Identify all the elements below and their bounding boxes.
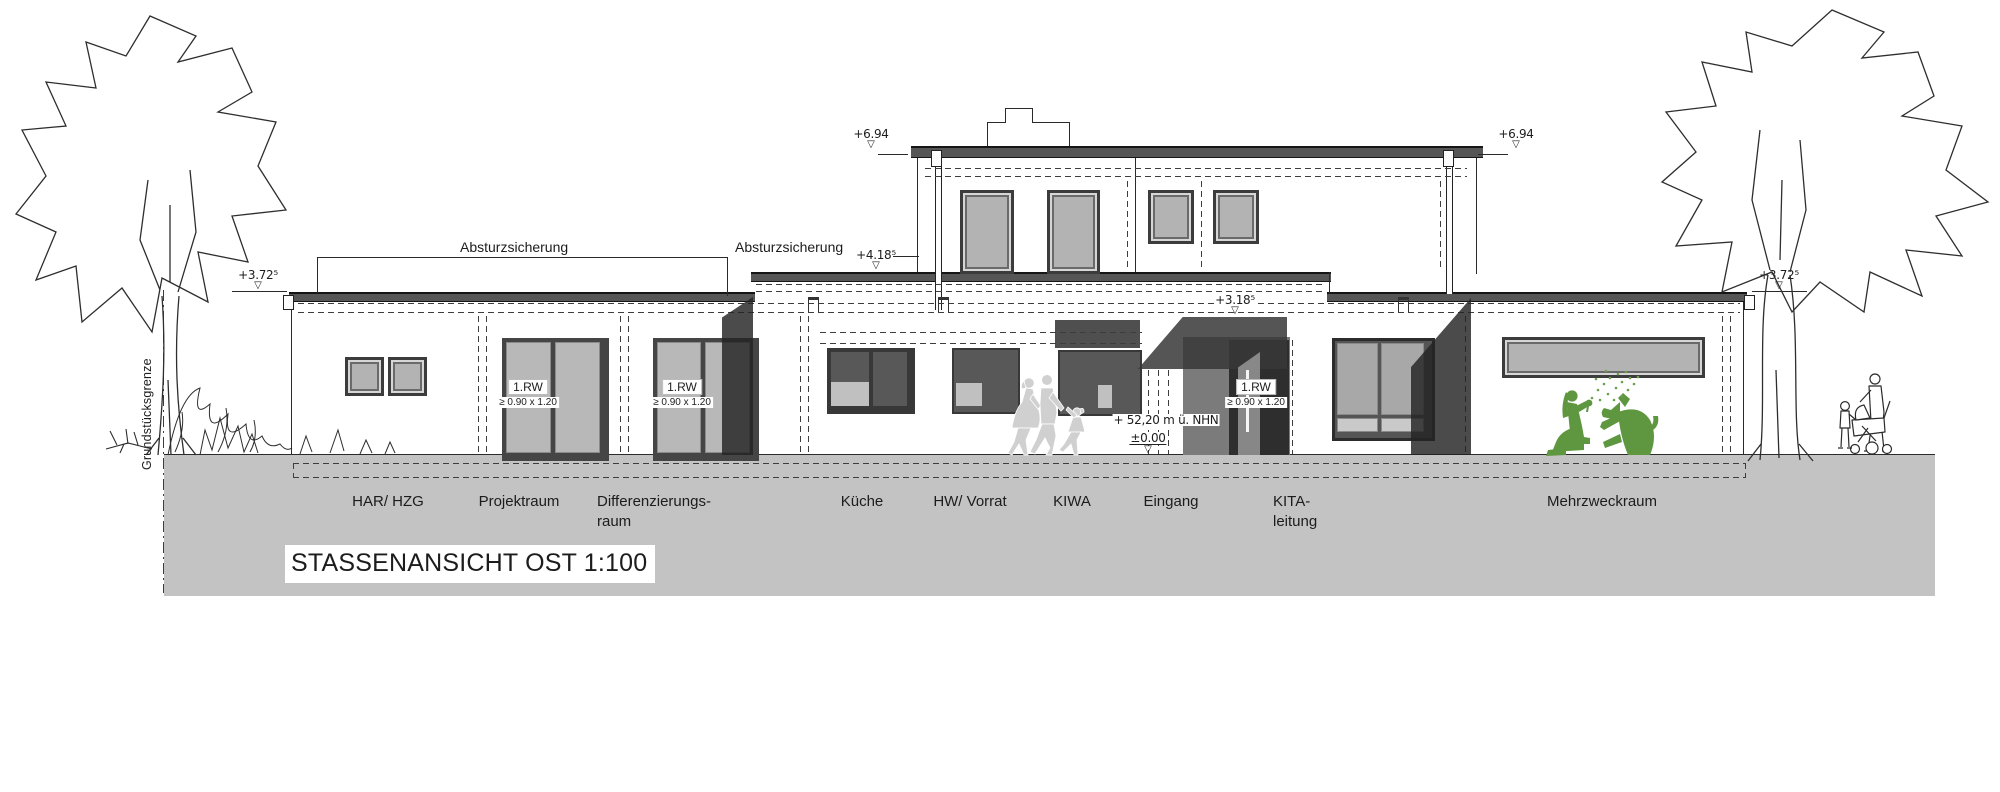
window-pane	[1337, 343, 1378, 415]
leader-line	[893, 256, 919, 257]
level-triangle-icon: ▽	[237, 281, 279, 290]
roof-railing	[317, 257, 727, 258]
dashed-line	[1168, 370, 1169, 454]
level-triangle-icon: ▽	[1129, 445, 1166, 454]
dashed-line	[756, 291, 1326, 292]
dashed-line	[298, 312, 1740, 313]
leader-line	[1478, 154, 1508, 155]
foundation-dashed-line	[293, 477, 1745, 478]
property-line-label: Grundstücksgrenze	[140, 352, 154, 470]
level-triangle-icon: ▽	[852, 140, 889, 149]
room-label-projektraum: Projektraum	[479, 492, 560, 512]
dashed-line	[925, 168, 1467, 169]
room-label-mehrzweckraum: Mehrzweckraum	[1547, 492, 1657, 512]
elevation-marker-canopy: +3.18⁵ ▽	[1214, 294, 1256, 315]
foundation-dashed-line	[1745, 463, 1746, 478]
chimney	[987, 122, 1070, 148]
rescue-window-tag: 1.RW ≥ 0.90 x 1.20	[497, 378, 559, 408]
right-wing-roof	[1327, 292, 1747, 302]
window-glass-light	[1098, 385, 1112, 408]
level-triangle-icon: ▽	[1497, 140, 1534, 149]
rescue-window-size: ≥ 0.90 x 1.20	[1225, 397, 1287, 408]
elevation-marker-roof-left: +3.72⁵ ▽	[237, 269, 279, 290]
room-label-kueche: Küche	[841, 492, 884, 512]
rescue-window-label: 1.RW	[508, 379, 548, 395]
dashed-line	[1201, 181, 1202, 271]
dashed-line	[925, 176, 1467, 177]
axis-line	[800, 316, 801, 454]
gutter-bracket	[283, 295, 294, 310]
gutter-bracket	[1744, 295, 1755, 310]
drawing-title: STASSENANSICHT OST 1:100	[285, 545, 655, 583]
facade-shadow-band	[722, 297, 753, 455]
foundation-dashed-line	[293, 463, 1745, 464]
elevation-marker-roof-upper-left: +6.94 ▽	[852, 128, 889, 149]
level-triangle-icon: ▽	[1758, 281, 1800, 290]
rescue-window-size: ≥ 0.90 x 1.20	[651, 397, 713, 408]
dashed-line	[1127, 181, 1128, 271]
dashed-line	[1440, 181, 1441, 271]
roof-railing-post	[317, 257, 318, 293]
upper-small-window-left	[1148, 190, 1194, 244]
window-pane	[555, 342, 600, 453]
axis-line	[1722, 316, 1723, 454]
roof-step-line	[1329, 272, 1330, 294]
stroller-group	[1838, 374, 1892, 454]
property-line	[163, 290, 164, 593]
dashed-line	[820, 332, 1142, 333]
level-triangle-icon: ▽	[1214, 306, 1256, 315]
room-label-kiwa: KIWA	[1053, 492, 1091, 512]
leader-line	[1752, 291, 1807, 292]
dashed-line	[298, 303, 1740, 304]
room-label-hw-vorrat: HW/ Vorrat	[933, 492, 1006, 512]
leader-line	[232, 291, 287, 292]
roof-vent	[938, 297, 949, 312]
upper-window-right	[1047, 190, 1100, 274]
level-triangle-icon: ▽	[855, 261, 897, 270]
window-glass-dark	[831, 352, 869, 382]
upper-small-window-right	[1213, 190, 1259, 244]
roof-vent	[808, 297, 819, 312]
dashed-line	[756, 284, 1326, 285]
foundation-dashed-line	[293, 463, 294, 478]
kueche-window	[827, 348, 915, 414]
fall-protection-label-2: Absturzsicherung	[733, 239, 845, 255]
elevation-marker-roof-right: +3.72⁵ ▽	[1758, 269, 1800, 290]
elevation-marker-roof-upper-right: +6.94 ▽	[1497, 128, 1534, 149]
har-hzg-window-2	[388, 357, 427, 396]
upper-storey-roof	[911, 146, 1483, 158]
left-wing-roof	[289, 292, 755, 302]
room-label-differenzierungsraum: Differenzierungs- raum	[597, 492, 711, 532]
rescue-window-tag: 1.RW ≥ 0.90 x 1.20	[651, 378, 713, 408]
rescue-window-label: 1.RW	[1236, 379, 1276, 395]
gutter-bracket	[1443, 150, 1454, 167]
rescue-window-tag: 1.RW ≥ 0.90 x 1.20	[1225, 378, 1287, 408]
dashed-line	[1292, 340, 1293, 454]
upper-window-left	[960, 190, 1014, 274]
room-label-eingang: Eingang	[1143, 492, 1198, 512]
hw-vorrat-window	[952, 348, 1020, 414]
axis-line	[620, 316, 621, 454]
downpipe	[935, 158, 942, 310]
axis-line	[1730, 316, 1731, 454]
downpipe	[1446, 158, 1453, 294]
chimney-cap	[1005, 108, 1033, 123]
rescue-window-label: 1.RW	[662, 379, 702, 395]
sea-level-label: + 52,20 m ü. NHN	[1113, 414, 1220, 426]
axis-line	[478, 316, 479, 454]
kiwa-window	[1058, 350, 1142, 416]
axis-line	[628, 316, 629, 454]
leader-line	[878, 154, 908, 155]
rescue-window-size: ≥ 0.90 x 1.20	[497, 397, 559, 408]
window-glass-light	[956, 383, 982, 406]
room-label-kita-leitung: KITA- leitung	[1273, 492, 1317, 532]
elevation-marker-ground-zero: ±0.00 ▽	[1129, 432, 1166, 454]
axis-line	[808, 316, 809, 454]
roof-vent	[1398, 297, 1409, 312]
window-glass-dark	[873, 352, 907, 406]
axis-line	[486, 316, 487, 454]
har-hzg-window-1	[345, 357, 384, 396]
elevation-marker-roof-mid: +4.18⁵ ▽	[855, 249, 897, 270]
mehrzweckraum-window	[1502, 337, 1705, 378]
elevation-drawing: Grundstücksgrenze	[0, 0, 2000, 792]
fall-protection-label-1: Absturzsicherung	[458, 239, 570, 255]
roof-railing-post	[727, 257, 728, 296]
window-glass-light	[831, 382, 869, 406]
dashed-line	[820, 343, 1142, 344]
middle-roof	[751, 272, 1331, 282]
window-bottom-panel	[1337, 418, 1378, 432]
gutter-bracket	[931, 150, 942, 167]
room-label-har-hzg: HAR/ HZG	[352, 492, 424, 512]
